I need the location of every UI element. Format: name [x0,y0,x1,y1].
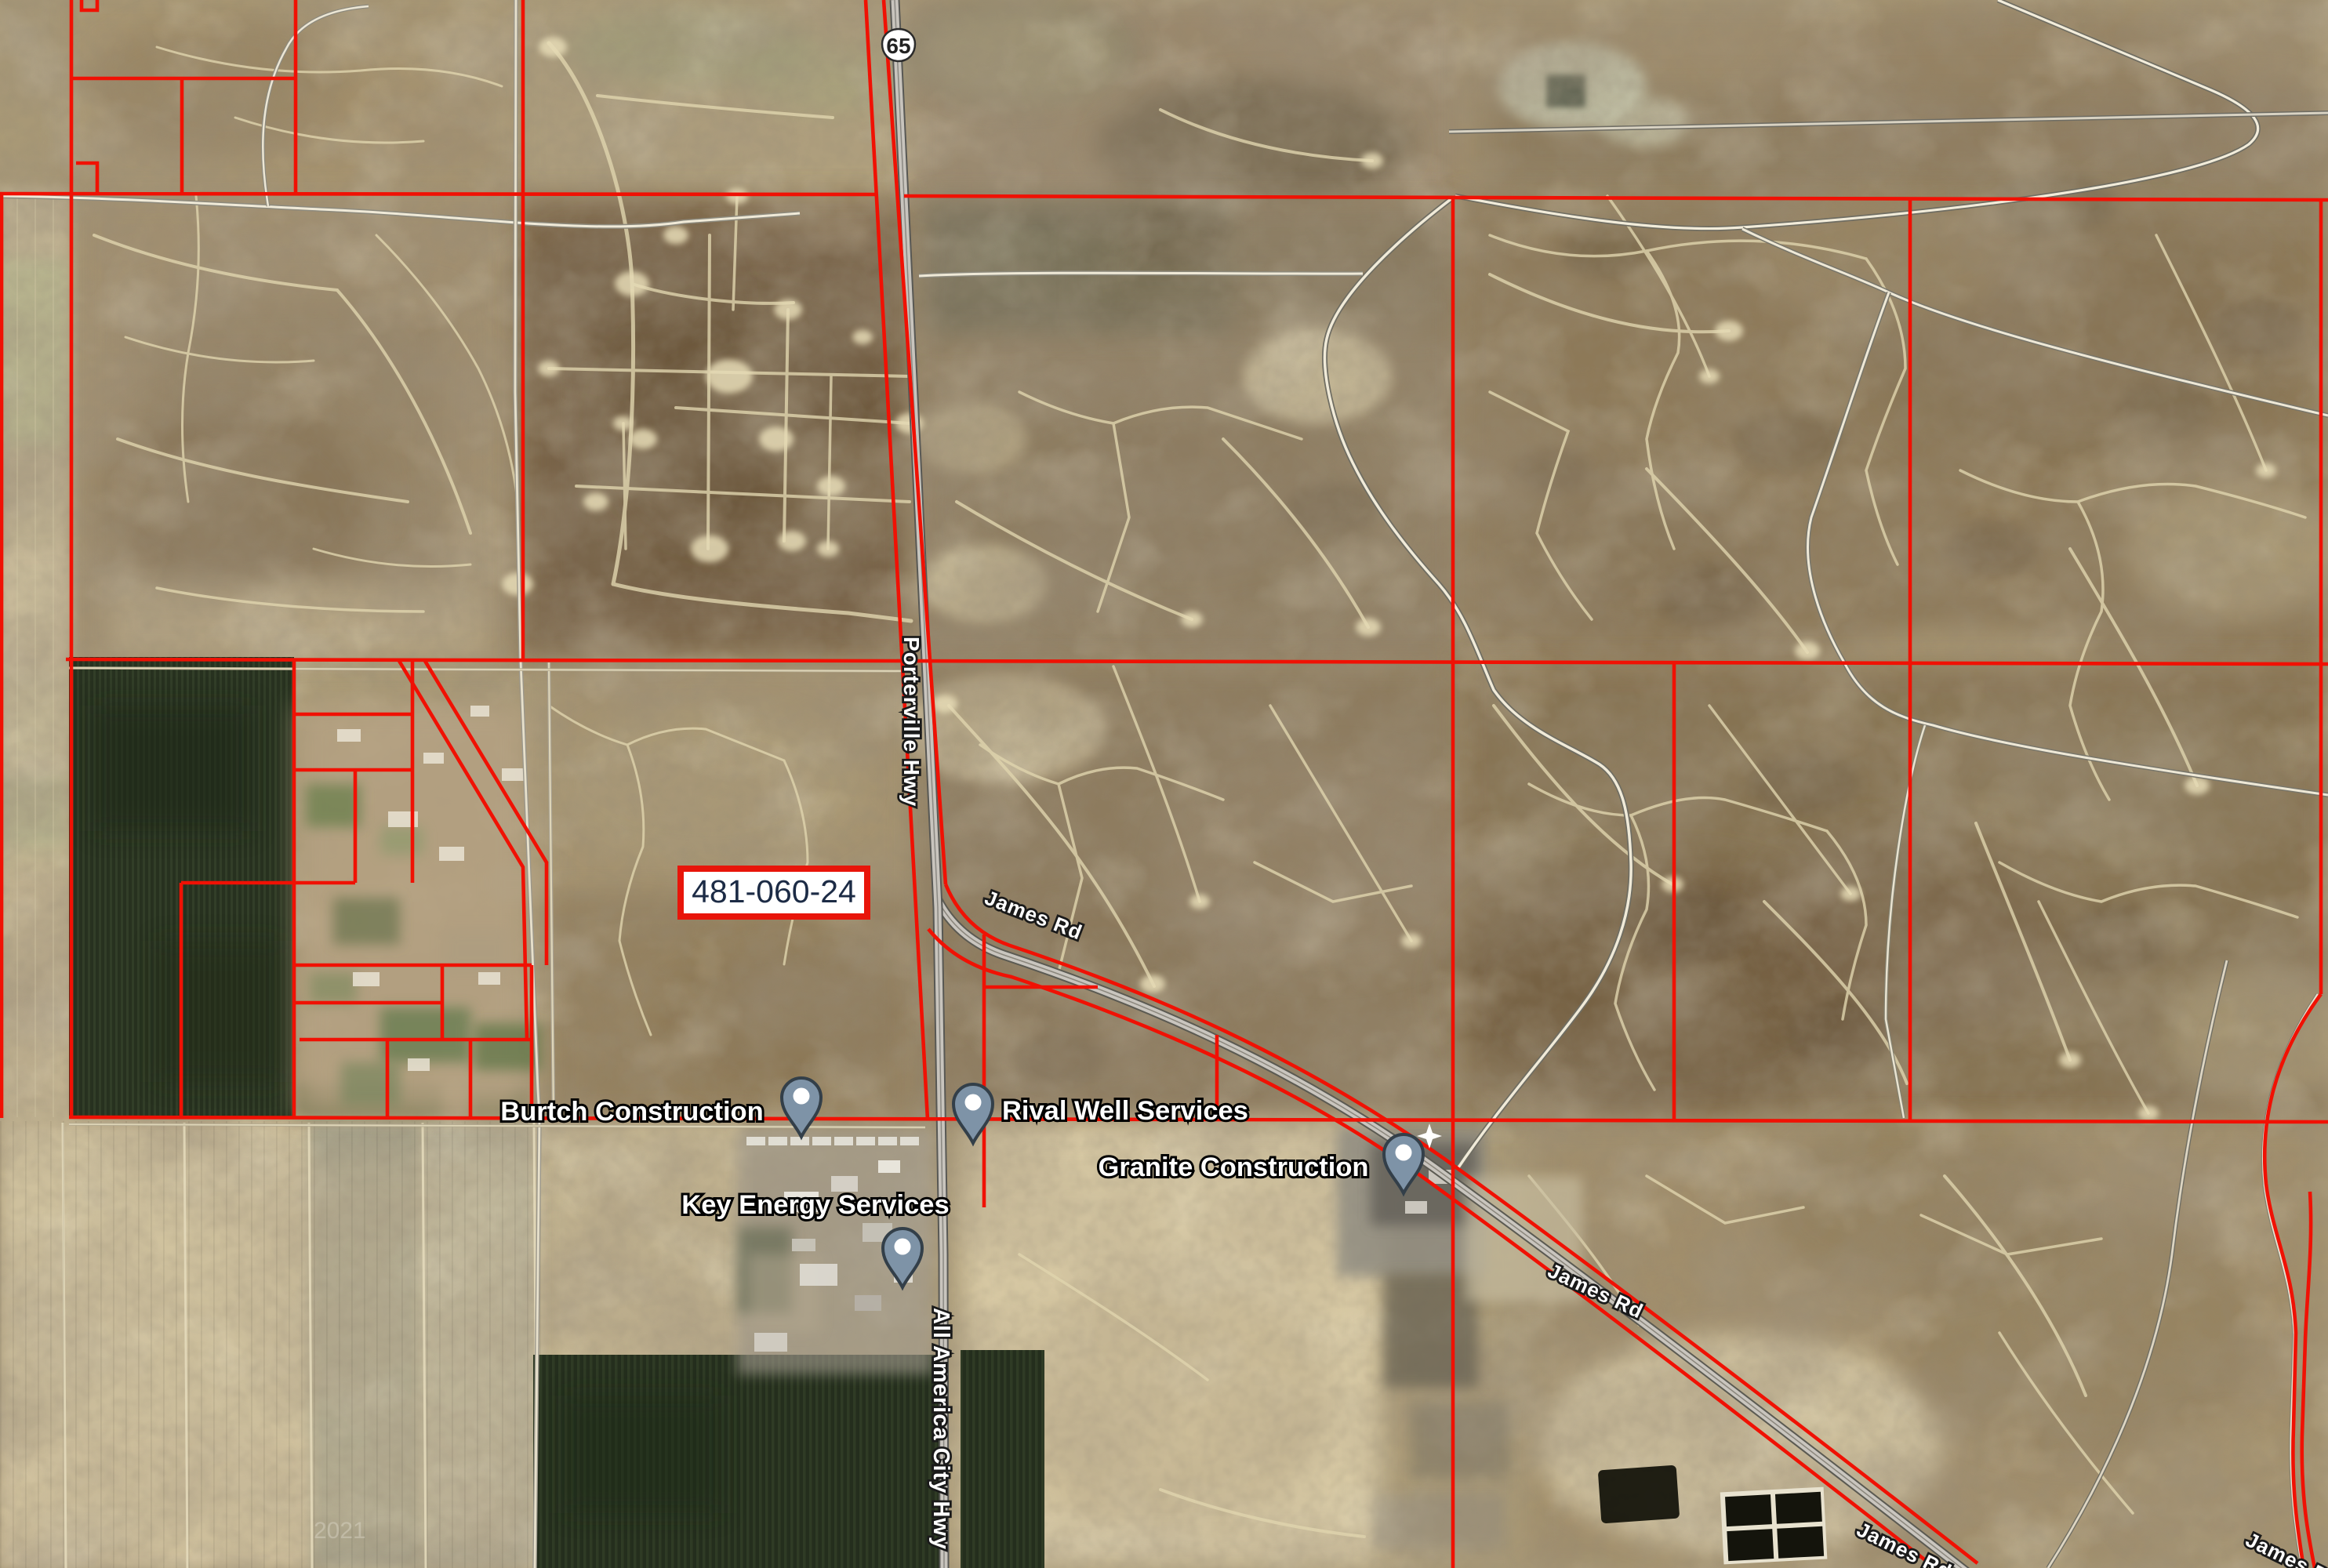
svg-text:Burtch Construction: Burtch Construction [500,1097,763,1127]
svg-text:Porterville Hwy: Porterville Hwy [899,637,924,807]
svg-text:Granite Construction: Granite Construction [1098,1152,1368,1182]
svg-text:2021: 2021 [314,1518,366,1544]
svg-text:Rival Well Services: Rival Well Services [1002,1096,1248,1126]
svg-text:Key Energy Services: Key Energy Services [681,1190,949,1220]
svg-text:All America City Hwy: All America City Hwy [928,1308,953,1550]
svg-text:481-060-24: 481-060-24 [692,873,856,909]
svg-text:65: 65 [886,34,910,58]
